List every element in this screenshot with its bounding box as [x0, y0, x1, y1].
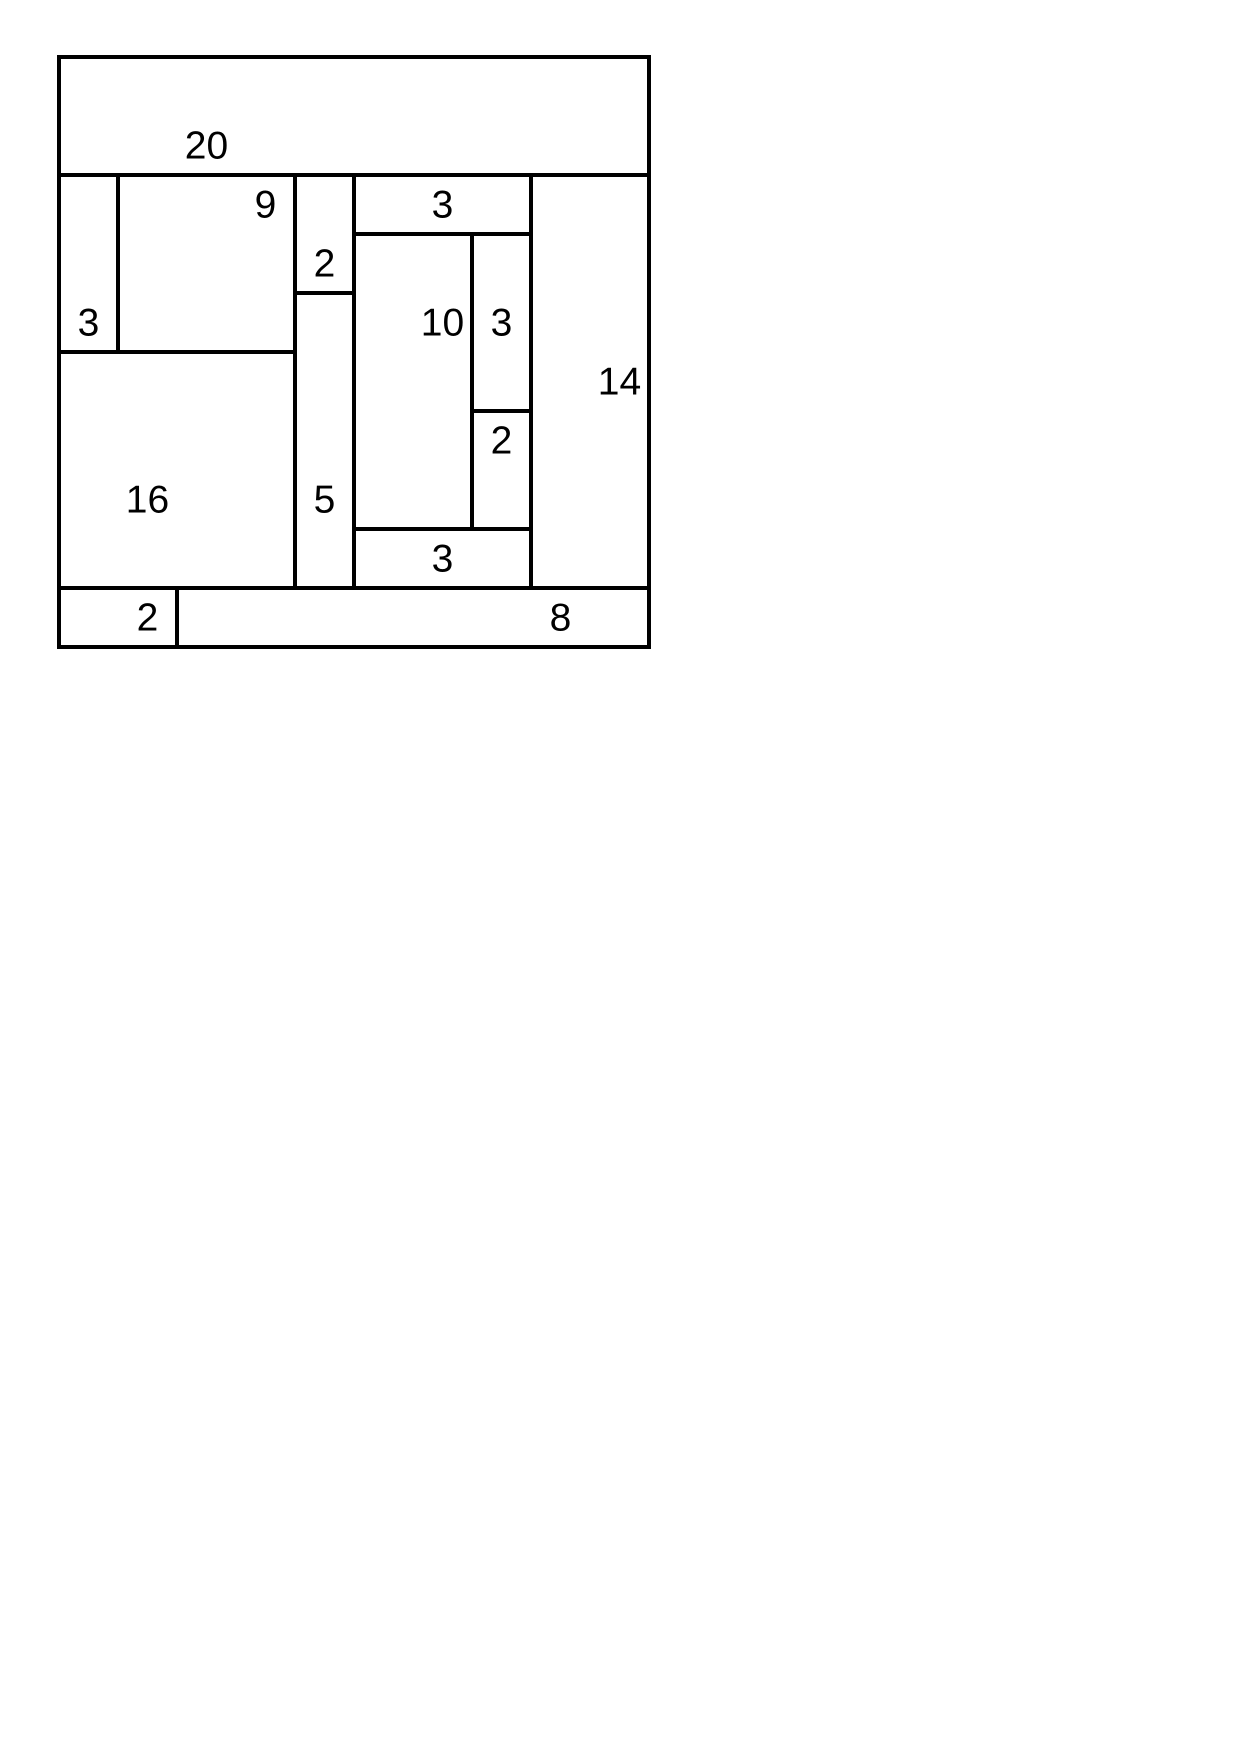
area-label: 8: [550, 598, 572, 637]
puzzle-rectangle-10-area-16: [57, 350, 297, 590]
area-label: 5: [314, 480, 336, 519]
area-label: 3: [491, 303, 513, 342]
puzzle-rectangle-12-area-2: [57, 586, 179, 649]
area-label: 10: [421, 303, 464, 342]
area-label: 2: [314, 244, 336, 283]
area-label: 3: [432, 185, 454, 224]
puzzle-rectangle-0-area-20: [57, 55, 651, 177]
area-label: 9: [255, 185, 277, 224]
partition-diagram: 203923141032516328: [0, 0, 1240, 1754]
area-label: 14: [598, 362, 641, 401]
puzzle-rectangle-6-area-10: [352, 232, 474, 531]
area-label: 3: [78, 303, 100, 342]
area-label: 2: [137, 598, 159, 637]
puzzle-rectangle-13-area-8: [175, 586, 651, 649]
area-label: 3: [432, 539, 454, 578]
area-label: 2: [491, 421, 513, 460]
puzzle-rectangle-9-area-5: [293, 291, 356, 590]
area-label: 20: [185, 126, 228, 165]
area-label: 16: [126, 480, 169, 519]
page: 203923141032516328: [0, 0, 1240, 1754]
